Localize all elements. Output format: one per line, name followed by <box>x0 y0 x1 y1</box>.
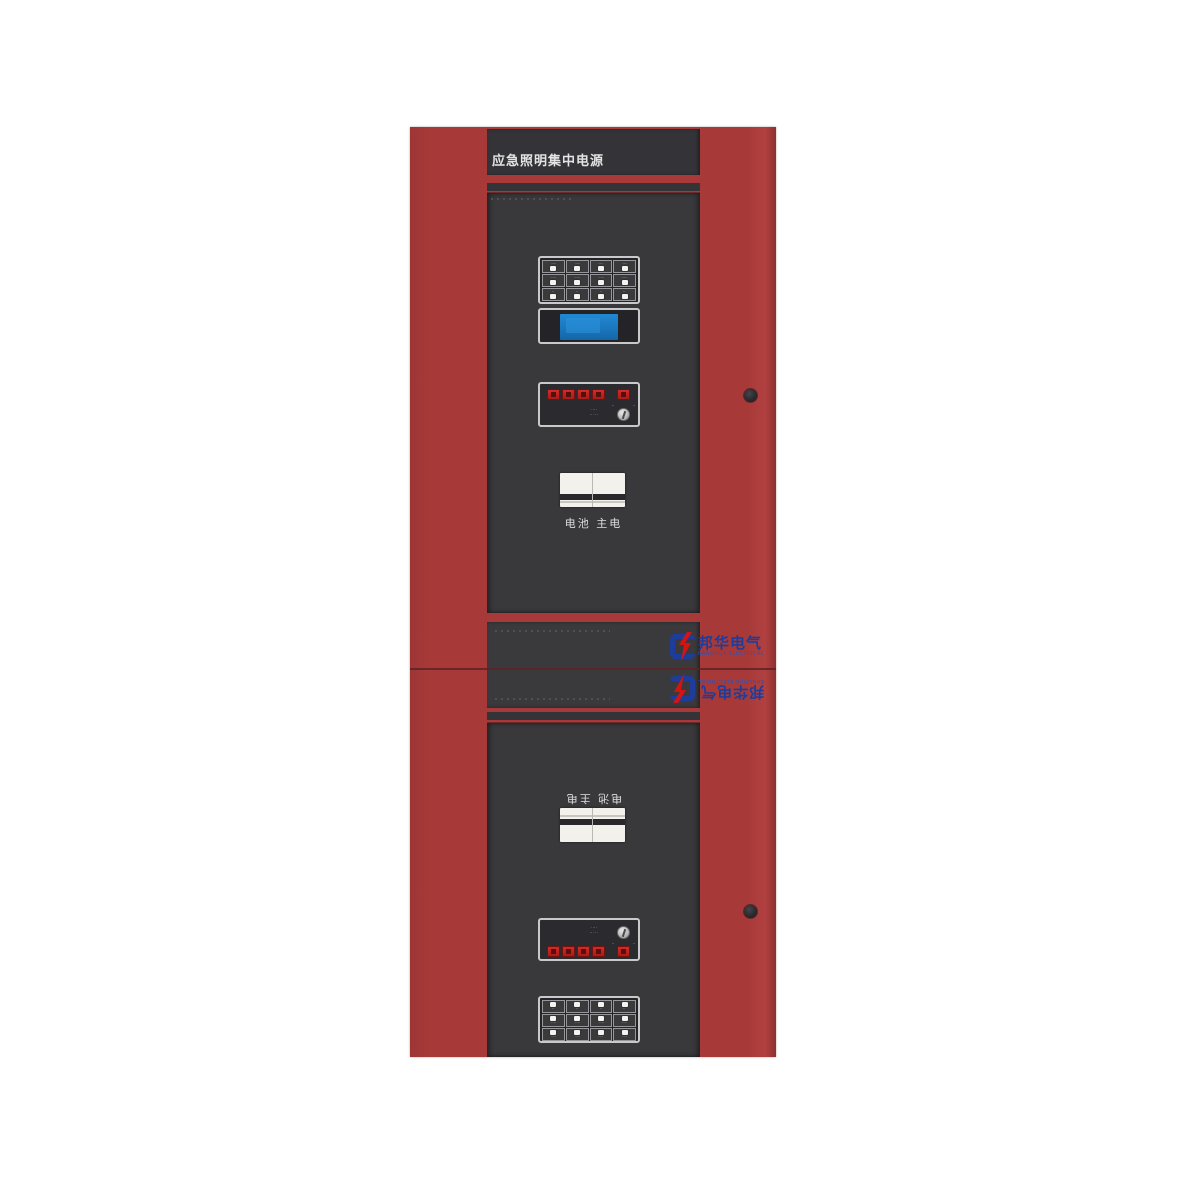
upper-switch-label: 电池 主电 <box>487 515 700 531</box>
cell-label: ····· <box>551 276 556 279</box>
vent-dots-mid-bottom <box>495 698 610 700</box>
door-lock-lower[interactable] <box>743 904 758 919</box>
knob-mark-right: ·· <box>630 403 639 408</box>
grid-cell[interactable]: ···· <box>590 260 613 273</box>
red-indicator-button[interactable] <box>592 389 605 400</box>
middle-logo-block: 邦华电气 BANGHUA ELECTRICAL 邦华电气 BANGHUA ELE… <box>487 622 700 708</box>
grid-cell[interactable]: ·· <box>613 1000 636 1013</box>
cabinet-title: 应急照明集中电源 <box>492 150 604 169</box>
grid-cell[interactable]: ·· <box>613 288 636 301</box>
cell-button[interactable] <box>574 280 580 285</box>
logo-text-en: BANGHUA ELECTRICAL <box>698 678 764 683</box>
cell-label: ···· <box>575 1035 579 1038</box>
upper-door-panel: ···· ···· ···· ···· ····· ····· ····· ··… <box>487 192 700 613</box>
knob-mark-left: ·· <box>609 941 618 946</box>
cell-button[interactable] <box>550 280 556 285</box>
key-switch-knob[interactable] <box>617 926 630 939</box>
grid-cell[interactable]: ·· <box>590 1000 613 1013</box>
grid-cell[interactable]: ···· <box>590 1028 613 1041</box>
grid-cell[interactable]: ····· <box>566 274 589 287</box>
cell-button[interactable] <box>574 266 580 271</box>
keyhole-slot <box>622 929 626 937</box>
brand-logo-lower-inverted: 邦华电气 BANGHUA ELECTRICAL <box>670 676 764 701</box>
lower-indicator-grid: ·· ·· ·· ·· ····· ····· ····· ····· ····… <box>538 996 640 1043</box>
key-panel-caption: · ·· · ·· ·· · <box>581 926 606 935</box>
cell-label: ····· <box>551 1021 556 1024</box>
lower-key-panel: · ·· · ·· ·· · ·· ·· <box>538 918 640 961</box>
logo-text: 邦华电气 BANGHUA ELECTRICAL <box>698 636 764 657</box>
vent-dots-mid-top <box>495 630 610 632</box>
grid-cell[interactable]: ···· <box>613 260 636 273</box>
vent-dots-upper <box>491 198 571 200</box>
cell-button[interactable] <box>574 294 580 299</box>
cell-label: ···· <box>599 262 603 265</box>
grid-cell[interactable]: ····· <box>590 1014 613 1027</box>
cell-label: ·· <box>576 1007 578 1010</box>
cabinet-title-bar: 应急照明集中电源 <box>487 129 700 175</box>
lightning-bolt-icon <box>672 674 688 703</box>
grid-cell[interactable]: ·· <box>542 1000 565 1013</box>
cell-label: ····· <box>598 1021 603 1024</box>
cell-label: ·· <box>600 290 602 293</box>
upper-indicator-grid: ···· ···· ···· ···· ····· ····· ····· ··… <box>538 256 640 304</box>
key-panel-caption: · ·· · ·· ·· · <box>581 408 606 417</box>
knob-mark-right: ·· <box>630 941 639 946</box>
red-indicator-button[interactable] <box>577 389 590 400</box>
red-indicator-button[interactable] <box>592 946 605 957</box>
cell-label: ···· <box>622 262 626 265</box>
cell-label: ····· <box>622 276 627 279</box>
cell-label: ·· <box>624 1007 626 1010</box>
cell-label: ·· <box>600 1007 602 1010</box>
grid-cell[interactable]: ···· <box>566 1028 589 1041</box>
grid-cell[interactable]: ···· <box>542 1028 565 1041</box>
lcd-screen <box>560 314 618 340</box>
screenshot-background: 应急照明集中电源 ···· ···· ···· ···· ····· ·····… <box>0 0 1200 1200</box>
logo-text: 邦华电气 BANGHUA ELECTRICAL <box>698 678 764 699</box>
upper-lcd-module <box>538 308 640 344</box>
cell-label: ····· <box>622 1021 627 1024</box>
logo-text-cn: 邦华电气 <box>698 636 764 651</box>
lower-breaker-switch[interactable] <box>560 808 625 842</box>
cell-button[interactable] <box>622 294 628 299</box>
grid-cell[interactable]: ···· <box>542 260 565 273</box>
keyhole-slot <box>622 411 626 419</box>
grid-cell[interactable]: ····· <box>542 1014 565 1027</box>
cell-button[interactable] <box>550 294 556 299</box>
cell-label: ·· <box>552 290 554 293</box>
key-switch-knob[interactable] <box>617 408 630 421</box>
grid-cell[interactable]: ····· <box>542 274 565 287</box>
lcd-glow <box>566 318 600 333</box>
cabinet-seam-line <box>410 668 776 670</box>
top-bezel-strip <box>487 183 700 191</box>
red-indicator-button[interactable] <box>577 946 590 957</box>
grid-cell[interactable]: ·· <box>566 1000 589 1013</box>
cell-button[interactable] <box>598 294 604 299</box>
lightning-bolt-icon <box>677 632 693 661</box>
door-lock-upper[interactable] <box>743 388 758 403</box>
power-supply-cabinet: 应急照明集中电源 ···· ···· ···· ···· ····· ·····… <box>410 127 776 1057</box>
breaker-divider <box>592 473 593 507</box>
cell-button[interactable] <box>622 266 628 271</box>
red-indicator-button[interactable] <box>617 389 630 400</box>
grid-cell[interactable]: ···· <box>613 1028 636 1041</box>
cell-button[interactable] <box>598 280 604 285</box>
logo-text-cn: 邦华电气 <box>698 684 764 699</box>
lower-switch-label: 电池 主电 <box>487 791 700 807</box>
cell-label: ·· <box>576 290 578 293</box>
knob-mark-left: ·· <box>609 403 618 408</box>
grid-cell[interactable]: ·· <box>542 288 565 301</box>
logo-bracket-icon <box>670 634 695 659</box>
bottom-bezel-strip <box>487 712 700 720</box>
grid-cell[interactable]: ·· <box>566 288 589 301</box>
cell-button[interactable] <box>598 266 604 271</box>
cell-button[interactable] <box>622 280 628 285</box>
red-indicator-button[interactable] <box>562 946 575 957</box>
cell-label: ····· <box>574 1021 579 1024</box>
logo-bracket-icon <box>670 676 695 701</box>
caption-line: ·· ·· · <box>581 930 606 935</box>
upper-breaker-switch[interactable] <box>560 473 625 507</box>
lower-door-panel: 电池 主电 · ·· · ·· ·· · ·· ·· <box>487 722 700 1057</box>
red-indicator-button[interactable] <box>562 389 575 400</box>
red-indicator-button[interactable] <box>617 946 630 957</box>
cell-label: ····· <box>598 276 603 279</box>
grid-cell[interactable]: ····· <box>566 1014 589 1027</box>
brand-logo-upper: 邦华电气 BANGHUA ELECTRICAL <box>670 634 764 659</box>
grid-cell[interactable]: ·· <box>590 288 613 301</box>
cell-label: ···· <box>551 262 555 265</box>
cell-label: ·· <box>552 1007 554 1010</box>
cell-label: ···· <box>622 1035 626 1038</box>
upper-key-panel: · ·· · ·· ·· · ·· ·· <box>538 382 640 427</box>
logo-text-en: BANGHUA ELECTRICAL <box>698 652 764 657</box>
cell-label: ····· <box>574 276 579 279</box>
grid-cell[interactable]: ····· <box>590 274 613 287</box>
red-indicator-button[interactable] <box>547 389 560 400</box>
cell-label: ···· <box>575 262 579 265</box>
grid-cell[interactable]: ···· <box>566 260 589 273</box>
grid-cell[interactable]: ····· <box>613 274 636 287</box>
caption-line: ·· ·· · <box>581 412 606 417</box>
cell-button[interactable] <box>550 266 556 271</box>
cell-label: ···· <box>599 1035 603 1038</box>
red-indicator-button[interactable] <box>547 946 560 957</box>
cell-label: ···· <box>551 1035 555 1038</box>
breaker-divider <box>592 808 593 842</box>
grid-cell[interactable]: ····· <box>613 1014 636 1027</box>
